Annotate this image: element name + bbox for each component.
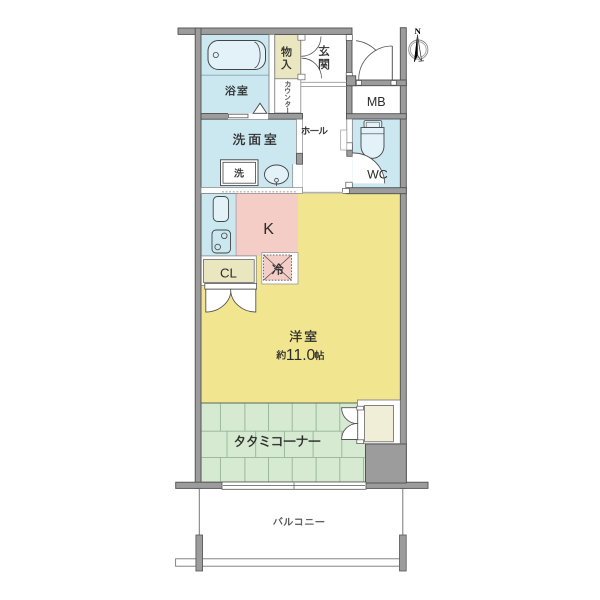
- svg-text:MB: MB: [367, 95, 386, 109]
- svg-text:11.0: 11.0: [286, 347, 316, 364]
- svg-text:WC: WC: [367, 168, 388, 182]
- svg-text:N: N: [415, 26, 422, 36]
- svg-text:K: K: [263, 221, 274, 238]
- svg-text:CL: CL: [220, 266, 237, 281]
